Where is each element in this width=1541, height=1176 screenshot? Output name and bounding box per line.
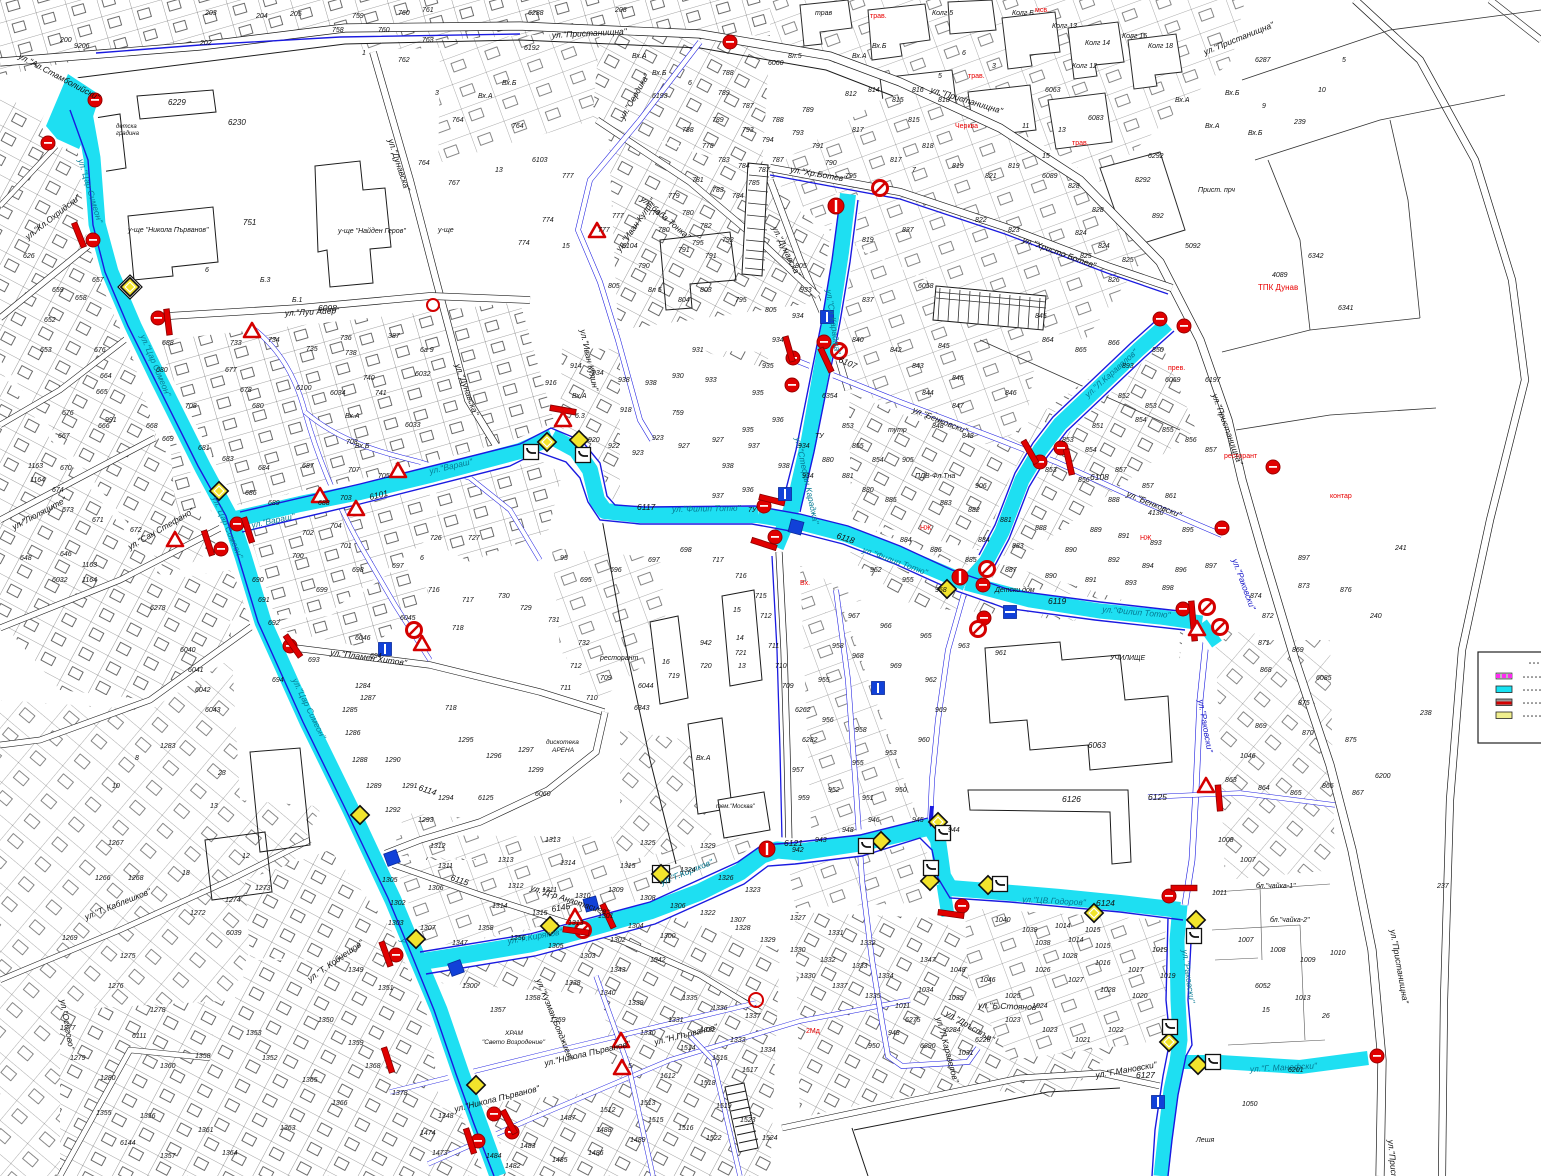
svg-text:805: 805 xyxy=(795,263,807,270)
svg-text:1333: 1333 xyxy=(852,963,868,970)
svg-text:8л.5: 8л.5 xyxy=(788,53,802,60)
svg-text:1518: 1518 xyxy=(700,1080,716,1087)
svg-text:897: 897 xyxy=(1205,563,1218,570)
svg-text:855: 855 xyxy=(1162,427,1174,434)
svg-text:АРЕНА: АРЕНА xyxy=(551,747,574,754)
svg-text:1322: 1322 xyxy=(700,910,716,917)
svg-text:694: 694 xyxy=(272,677,284,684)
svg-text:698: 698 xyxy=(352,567,364,574)
svg-text:791: 791 xyxy=(678,247,690,254)
svg-text:1330: 1330 xyxy=(790,947,806,954)
svg-text:1294: 1294 xyxy=(438,795,454,802)
svg-text:965: 965 xyxy=(920,633,932,640)
svg-text:Вх.А: Вх.А xyxy=(852,53,867,60)
svg-text:853: 853 xyxy=(1062,437,1074,444)
svg-text:920: 920 xyxy=(588,437,600,444)
svg-text:688: 688 xyxy=(162,340,174,347)
svg-text:1274: 1274 xyxy=(225,897,241,904)
svg-text:6341: 6341 xyxy=(1338,305,1354,312)
svg-text:795: 795 xyxy=(735,297,747,304)
svg-text:6282: 6282 xyxy=(802,737,818,744)
svg-text:1305: 1305 xyxy=(382,877,398,884)
svg-text:883: 883 xyxy=(1012,543,1024,550)
svg-text:1295: 1295 xyxy=(458,737,474,744)
svg-text:805: 805 xyxy=(765,307,777,314)
svg-text:777: 777 xyxy=(612,213,625,220)
svg-text:845: 845 xyxy=(938,343,950,350)
svg-text:914: 914 xyxy=(570,363,582,370)
svg-text:6042: 6042 xyxy=(195,687,211,694)
svg-text:1313: 1313 xyxy=(568,920,584,927)
svg-text:6044: 6044 xyxy=(638,683,654,690)
svg-text:784: 784 xyxy=(732,193,744,200)
svg-text:1340: 1340 xyxy=(600,990,616,997)
svg-text:854: 854 xyxy=(1135,417,1147,424)
svg-text:865: 865 xyxy=(1290,790,1302,797)
svg-text:692: 692 xyxy=(268,620,280,627)
svg-text:963: 963 xyxy=(958,643,970,650)
svg-text:6111: 6111 xyxy=(132,1033,147,1040)
svg-text:783: 783 xyxy=(712,187,724,194)
svg-text:13: 13 xyxy=(210,803,218,810)
svg-text:734: 734 xyxy=(268,337,280,344)
svg-text:6104: 6104 xyxy=(622,243,638,250)
svg-text:204: 204 xyxy=(255,13,268,20)
svg-text:803: 803 xyxy=(700,287,712,294)
svg-text:6354: 6354 xyxy=(822,393,838,400)
svg-text:707: 707 xyxy=(348,467,361,474)
svg-text:15: 15 xyxy=(1042,153,1050,160)
svg-text:9206: 9206 xyxy=(74,43,90,50)
svg-text:688: 688 xyxy=(318,500,330,507)
svg-text:667: 667 xyxy=(58,433,71,440)
svg-text:1276: 1276 xyxy=(108,983,124,990)
svg-text:846: 846 xyxy=(952,375,964,382)
svg-text:711: 711 xyxy=(768,643,779,650)
svg-text:935: 935 xyxy=(742,427,754,434)
svg-text:893: 893 xyxy=(1150,540,1162,547)
svg-text:767: 767 xyxy=(448,180,461,187)
svg-text:955: 955 xyxy=(818,677,830,684)
svg-text:846: 846 xyxy=(1005,390,1017,397)
svg-text:927: 927 xyxy=(678,443,691,450)
svg-text:787: 787 xyxy=(758,167,771,174)
svg-text:1312: 1312 xyxy=(430,843,446,850)
svg-text:1335: 1335 xyxy=(865,993,881,1000)
svg-text:ресторант: ресторант xyxy=(599,655,638,662)
svg-text:1292: 1292 xyxy=(385,807,401,814)
svg-text:1028: 1028 xyxy=(1100,987,1116,994)
svg-text:1522: 1522 xyxy=(706,1135,722,1142)
svg-text:1024: 1024 xyxy=(1032,1003,1048,1010)
svg-text:14: 14 xyxy=(736,635,744,642)
svg-text:1358: 1358 xyxy=(195,1053,211,1060)
svg-text:1019: 1019 xyxy=(1152,947,1168,954)
svg-text:764: 764 xyxy=(452,117,464,124)
svg-text:237: 237 xyxy=(1436,883,1450,890)
svg-text:960: 960 xyxy=(918,737,930,744)
svg-text:788: 788 xyxy=(682,127,694,134)
svg-text:718: 718 xyxy=(452,625,464,632)
svg-text:1013: 1013 xyxy=(1295,995,1311,1002)
svg-text:1026: 1026 xyxy=(1035,967,1051,974)
svg-text:1342: 1342 xyxy=(650,957,666,964)
svg-text:6059: 6059 xyxy=(1165,377,1181,384)
svg-text:6278: 6278 xyxy=(150,605,166,612)
svg-text:1039: 1039 xyxy=(1022,927,1038,934)
svg-text:6262: 6262 xyxy=(795,707,811,714)
svg-text:6126: 6126 xyxy=(1062,794,1081,804)
svg-text:844: 844 xyxy=(922,390,934,397)
svg-text:1343: 1343 xyxy=(610,967,626,974)
svg-text:961: 961 xyxy=(995,650,1007,657)
svg-text:1515: 1515 xyxy=(648,1117,664,1124)
svg-text:665: 665 xyxy=(96,389,108,396)
svg-text:ресторант: ресторант xyxy=(1224,453,1258,460)
svg-text:1356: 1356 xyxy=(510,935,526,942)
svg-text:бл."чайка-2": бл."чайка-2" xyxy=(1270,916,1310,924)
svg-text:735: 735 xyxy=(306,346,318,353)
svg-text:6060: 6060 xyxy=(768,60,784,67)
svg-text:5: 5 xyxy=(938,73,942,80)
svg-text:3: 3 xyxy=(992,63,996,70)
svg-text:828: 828 xyxy=(1092,207,1104,214)
svg-text:763: 763 xyxy=(422,37,434,44)
svg-text:13: 13 xyxy=(738,663,746,670)
svg-text:26: 26 xyxy=(1321,1013,1330,1020)
svg-text:1349: 1349 xyxy=(348,967,364,974)
svg-text:659: 659 xyxy=(52,287,64,294)
svg-text:1330: 1330 xyxy=(800,973,816,980)
svg-text:790: 790 xyxy=(825,160,837,167)
svg-text:958: 958 xyxy=(855,727,867,734)
svg-text:890: 890 xyxy=(1065,547,1077,554)
svg-text:6290: 6290 xyxy=(920,1043,936,1050)
svg-text:1365: 1365 xyxy=(302,1077,318,1084)
svg-text:966: 966 xyxy=(880,623,892,630)
svg-text:891: 891 xyxy=(1118,533,1130,540)
svg-text:761: 761 xyxy=(422,7,434,14)
svg-text:Колг 12: Колг 12 xyxy=(1072,63,1097,70)
svg-text:1040: 1040 xyxy=(995,917,1011,924)
svg-text:1489: 1489 xyxy=(630,1137,646,1144)
svg-text:мсв.: мсв. xyxy=(1035,7,1049,14)
svg-text:1366: 1366 xyxy=(332,1100,348,1107)
svg-text:991: 991 xyxy=(105,417,117,424)
svg-text:740: 740 xyxy=(363,375,375,382)
svg-text:791: 791 xyxy=(812,143,824,150)
svg-text:6033: 6033 xyxy=(405,422,421,429)
svg-text:1513: 1513 xyxy=(640,1100,656,1107)
svg-text:894: 894 xyxy=(1142,563,1154,570)
svg-text:1314: 1314 xyxy=(560,860,576,867)
svg-text:1015: 1015 xyxy=(1085,927,1101,934)
svg-text:1289: 1289 xyxy=(366,783,382,790)
svg-text:1020: 1020 xyxy=(1132,993,1148,1000)
svg-text:1016: 1016 xyxy=(1095,960,1111,967)
svg-text:936: 936 xyxy=(742,487,754,494)
svg-text:868: 868 xyxy=(1260,667,1272,674)
svg-text:1331: 1331 xyxy=(668,1017,684,1024)
svg-text:1277: 1277 xyxy=(60,1025,77,1032)
svg-text:774: 774 xyxy=(542,217,554,224)
svg-text:1046: 1046 xyxy=(980,977,996,984)
svg-text:884: 884 xyxy=(900,537,912,544)
svg-text:955: 955 xyxy=(902,577,914,584)
svg-text:6201: 6201 xyxy=(1288,1067,1304,1074)
svg-text:1325: 1325 xyxy=(640,840,656,847)
svg-text:1516: 1516 xyxy=(678,1125,694,1132)
svg-text:6288: 6288 xyxy=(528,10,544,17)
svg-text:1313: 1313 xyxy=(498,857,514,864)
svg-text:1332: 1332 xyxy=(820,957,836,964)
svg-text:203: 203 xyxy=(204,10,217,17)
svg-text:"Свето Возродение": "Свето Возродение" xyxy=(482,1038,546,1046)
svg-text:детска: детска xyxy=(116,124,137,130)
svg-text:969: 969 xyxy=(935,707,947,714)
svg-text:Колг 5: Колг 5 xyxy=(932,10,953,17)
svg-text:1523: 1523 xyxy=(740,1117,756,1124)
svg-text:6226: 6226 xyxy=(975,1037,991,1044)
svg-text:711: 711 xyxy=(560,685,571,692)
svg-text:778: 778 xyxy=(648,210,660,217)
svg-text:854: 854 xyxy=(1085,447,1097,454)
svg-text:1338: 1338 xyxy=(565,980,581,987)
svg-text:956: 956 xyxy=(822,717,834,724)
svg-text:1: 1 xyxy=(362,50,366,57)
svg-text:6200: 6200 xyxy=(1375,773,1391,780)
svg-text:1473: 1473 xyxy=(432,1150,448,1157)
svg-text:1010: 1010 xyxy=(1330,950,1346,957)
svg-text:8л 5: 8л 5 xyxy=(648,287,662,294)
svg-text:6063: 6063 xyxy=(1045,87,1061,94)
svg-text:6046: 6046 xyxy=(355,635,371,642)
svg-text:Детски дом: Детски дом xyxy=(994,586,1035,594)
svg-text:847: 847 xyxy=(952,403,965,410)
svg-text:968: 968 xyxy=(852,653,864,660)
svg-text:Б.1: Б.1 xyxy=(292,297,303,304)
svg-text:2Мд: 2Мд xyxy=(806,1028,820,1035)
svg-text:815: 815 xyxy=(892,97,904,104)
svg-text:780: 780 xyxy=(658,227,670,234)
svg-text:934: 934 xyxy=(798,443,810,450)
svg-text:657: 657 xyxy=(92,277,105,284)
svg-text:958: 958 xyxy=(935,587,947,594)
svg-text:1353: 1353 xyxy=(246,1030,262,1037)
svg-text:669: 669 xyxy=(162,436,174,443)
svg-text:876: 876 xyxy=(1340,587,1352,594)
svg-text:Вх.: Вх. xyxy=(800,580,810,587)
svg-text:6052: 6052 xyxy=(1255,983,1271,990)
svg-text:783: 783 xyxy=(718,157,730,164)
svg-text:774: 774 xyxy=(518,240,530,247)
svg-text:854: 854 xyxy=(872,457,884,464)
svg-text:934: 934 xyxy=(772,337,784,344)
svg-text:699: 699 xyxy=(316,587,328,594)
svg-text:1355: 1355 xyxy=(96,1110,112,1117)
svg-text:6229: 6229 xyxy=(168,98,186,107)
svg-text:6089: 6089 xyxy=(1042,173,1058,180)
svg-text:815: 815 xyxy=(908,117,920,124)
svg-text:1268: 1268 xyxy=(128,875,144,882)
svg-text:6108: 6108 xyxy=(1090,472,1109,482)
svg-text:697: 697 xyxy=(392,563,405,570)
svg-text:695: 695 xyxy=(580,577,592,584)
svg-text:1287: 1287 xyxy=(360,695,377,702)
svg-text:875: 875 xyxy=(1345,737,1357,744)
svg-text:710: 710 xyxy=(586,695,598,702)
svg-text:828: 828 xyxy=(1068,183,1080,190)
svg-text:795: 795 xyxy=(692,240,704,247)
svg-text:238: 238 xyxy=(1419,710,1432,717)
svg-text:1361: 1361 xyxy=(198,1127,214,1134)
svg-text:823: 823 xyxy=(1008,227,1020,234)
svg-text:6041: 6041 xyxy=(188,667,204,674)
svg-text:1288: 1288 xyxy=(352,757,368,764)
svg-text:881: 881 xyxy=(842,473,854,480)
svg-text:1007: 1007 xyxy=(1238,937,1255,944)
svg-text:1352: 1352 xyxy=(262,1055,278,1062)
svg-text:5092: 5092 xyxy=(1185,243,1201,250)
svg-text:869: 869 xyxy=(1255,723,1267,730)
svg-text:1293: 1293 xyxy=(418,817,434,824)
svg-text:6032: 6032 xyxy=(415,371,431,378)
svg-text:959: 959 xyxy=(798,795,810,802)
svg-text:1307: 1307 xyxy=(420,925,437,932)
svg-text:1519: 1519 xyxy=(716,1103,732,1110)
svg-text:664: 664 xyxy=(100,373,112,380)
svg-text:874: 874 xyxy=(1250,593,1262,600)
svg-text:875: 875 xyxy=(1298,700,1310,707)
svg-text:1014: 1014 xyxy=(1068,937,1084,944)
svg-text:1297: 1297 xyxy=(518,747,535,754)
svg-text:958: 958 xyxy=(832,643,844,650)
svg-text:1358: 1358 xyxy=(478,925,494,932)
svg-text:6287: 6287 xyxy=(1255,57,1272,64)
svg-text:845: 845 xyxy=(1035,313,1047,320)
svg-text:4089: 4089 xyxy=(1272,272,1288,279)
svg-text:751: 751 xyxy=(243,218,256,227)
svg-text:1008: 1008 xyxy=(1270,947,1286,954)
svg-text:896: 896 xyxy=(1175,567,1187,574)
svg-text:1285: 1285 xyxy=(342,707,358,714)
svg-text:1337: 1337 xyxy=(745,1013,762,1020)
svg-text:895: 895 xyxy=(1182,527,1194,534)
svg-text:1279: 1279 xyxy=(70,1055,86,1062)
svg-text:885: 885 xyxy=(965,557,977,564)
svg-text:676: 676 xyxy=(94,347,106,354)
svg-text:1304: 1304 xyxy=(628,923,644,930)
svg-text:668: 668 xyxy=(146,423,158,430)
svg-text:936: 936 xyxy=(772,417,784,424)
svg-text:6: 6 xyxy=(962,50,966,57)
svg-text:1350: 1350 xyxy=(318,1017,334,1024)
svg-text:1331: 1331 xyxy=(828,930,844,937)
svg-text:1324: 1324 xyxy=(680,867,696,874)
svg-text:916: 916 xyxy=(545,380,557,387)
svg-text:1303: 1303 xyxy=(388,920,404,927)
svg-text:729: 729 xyxy=(520,605,532,612)
svg-text:969: 969 xyxy=(890,663,902,670)
svg-text:715: 715 xyxy=(755,593,767,600)
svg-text:885: 885 xyxy=(885,497,897,504)
svg-text:у-ще "Найден Геров": у-ще "Найден Геров" xyxy=(337,227,406,235)
svg-text:938: 938 xyxy=(645,380,657,387)
svg-text:852: 852 xyxy=(1118,393,1130,400)
svg-text:1269: 1269 xyxy=(62,935,78,942)
svg-text:950: 950 xyxy=(868,1043,880,1050)
svg-text:698: 698 xyxy=(680,547,692,554)
svg-text:10: 10 xyxy=(112,783,120,790)
svg-text:23: 23 xyxy=(217,770,226,777)
svg-text:825: 825 xyxy=(1080,253,1092,260)
svg-text:759: 759 xyxy=(352,13,364,20)
svg-text:1009: 1009 xyxy=(1300,957,1316,964)
svg-text:1299: 1299 xyxy=(528,767,544,774)
svg-text:818: 818 xyxy=(938,97,950,104)
svg-text:1348: 1348 xyxy=(438,1113,454,1120)
svg-text:Вх.А: Вх.А xyxy=(696,755,711,762)
svg-text:898: 898 xyxy=(1162,585,1174,592)
svg-text:у-ще: у-ще xyxy=(437,227,454,234)
svg-text:1283: 1283 xyxy=(160,743,176,750)
svg-text:1363: 1363 xyxy=(280,1125,296,1132)
svg-text:937: 937 xyxy=(748,443,761,450)
svg-text:791: 791 xyxy=(705,253,717,260)
svg-text:779: 779 xyxy=(668,193,680,200)
svg-text:тем."Москва": тем."Москва" xyxy=(716,804,756,810)
svg-text:700: 700 xyxy=(292,553,304,560)
svg-text:945: 945 xyxy=(912,817,924,824)
svg-text:ТУ: ТУ xyxy=(815,433,825,440)
svg-text:727: 727 xyxy=(468,535,481,542)
svg-text:1612: 1612 xyxy=(660,1073,676,1080)
svg-text:709: 709 xyxy=(600,675,612,682)
svg-text:726: 726 xyxy=(430,535,442,542)
svg-text:1517: 1517 xyxy=(742,1067,759,1074)
svg-text:дискотека: дискотека xyxy=(546,738,579,746)
svg-text:6058: 6058 xyxy=(918,283,934,290)
svg-text:840: 840 xyxy=(852,337,864,344)
svg-text:777: 777 xyxy=(562,173,575,180)
svg-text:720: 720 xyxy=(700,663,712,670)
svg-text:789: 789 xyxy=(718,90,730,97)
svg-text:Вх.Б: Вх.Б xyxy=(872,43,887,50)
svg-text:ул."Филип Тотю": ул."Филип Тотю" xyxy=(671,503,742,514)
svg-text:690: 690 xyxy=(252,577,264,584)
svg-text:677: 677 xyxy=(225,367,238,374)
svg-text:930: 930 xyxy=(672,373,684,380)
svg-text:5: 5 xyxy=(628,1063,632,1070)
svg-text:6083: 6083 xyxy=(1088,115,1104,122)
svg-text:1028: 1028 xyxy=(1062,953,1078,960)
svg-text:1332: 1332 xyxy=(700,1027,716,1034)
svg-text:трав.: трав. xyxy=(1072,140,1089,147)
svg-text:856: 856 xyxy=(1185,437,1197,444)
svg-text:672: 672 xyxy=(130,527,142,534)
svg-text:850: 850 xyxy=(1152,347,1164,354)
svg-text:785: 785 xyxy=(748,180,760,187)
svg-text:946: 946 xyxy=(868,817,880,824)
svg-text:6119: 6119 xyxy=(1048,596,1067,606)
svg-text:Вх.А: Вх.А xyxy=(478,93,493,100)
svg-text:883: 883 xyxy=(940,500,952,507)
svg-text:897: 897 xyxy=(1298,555,1311,562)
svg-text:817: 817 xyxy=(852,127,865,134)
svg-text:843: 843 xyxy=(912,363,924,370)
svg-text:822: 822 xyxy=(975,217,987,224)
svg-text:856: 856 xyxy=(1078,477,1090,484)
